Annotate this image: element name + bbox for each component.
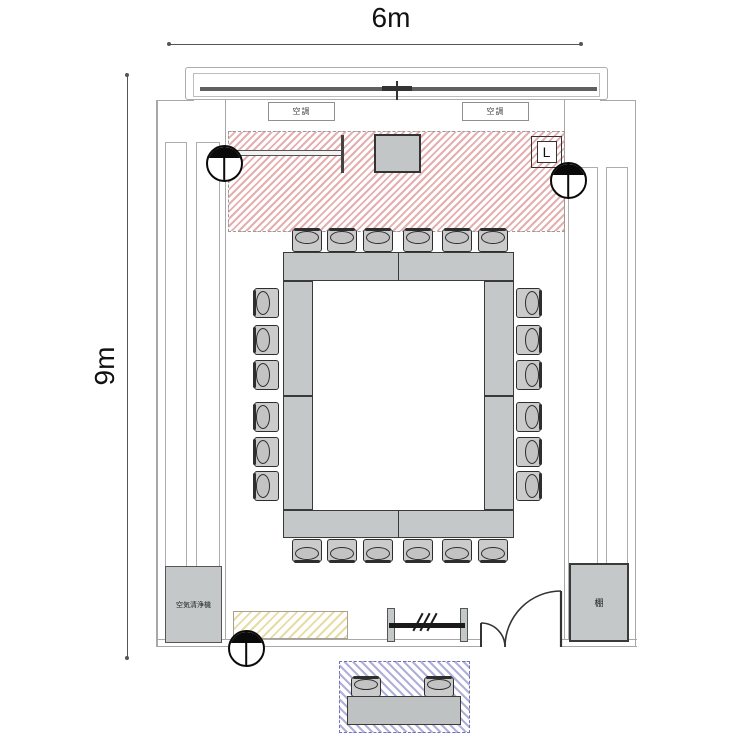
chair	[478, 229, 508, 252]
chair-seat	[525, 474, 539, 498]
pillar-bottom-left-icon	[228, 630, 265, 667]
chair	[516, 471, 541, 501]
width-dimension-label: 6m	[360, 0, 422, 36]
chair	[327, 539, 357, 562]
chair	[442, 229, 472, 252]
chair	[254, 360, 279, 390]
dimension-end-dot	[125, 73, 129, 77]
dimension-end-dot	[125, 656, 129, 660]
chair-seat	[256, 291, 270, 315]
chair	[363, 539, 393, 562]
chair-seat	[481, 547, 505, 560]
reception-table	[347, 696, 461, 725]
chair	[478, 539, 508, 562]
chair	[403, 229, 433, 252]
chair-seat	[406, 231, 430, 244]
bottom-outer-wall-right	[561, 646, 637, 648]
chair-seat	[445, 547, 469, 560]
chair	[254, 471, 279, 501]
chair-seat	[525, 291, 539, 315]
chair-seat	[445, 231, 469, 244]
height-dimension-line	[127, 75, 129, 658]
dimension-end-dot	[579, 42, 583, 46]
chair-seat	[525, 363, 539, 387]
chair-seat	[256, 405, 270, 429]
chair	[516, 325, 541, 355]
chair	[516, 402, 541, 432]
projector-screen-end	[341, 135, 344, 173]
chair	[327, 229, 357, 252]
chair	[292, 539, 322, 562]
door-swing-small	[481, 623, 505, 647]
bottom-outer-wall-left	[157, 646, 481, 648]
chair-seat	[481, 231, 505, 244]
chair	[363, 229, 393, 252]
dimension-end-dot	[167, 42, 171, 46]
right-wall-step	[600, 100, 636, 101]
ac-unit-left: 空調	[268, 102, 335, 121]
chair-seat	[366, 547, 390, 560]
chair	[516, 288, 541, 318]
left-wall-step	[156, 100, 194, 101]
table-divider	[484, 395, 514, 397]
chair	[516, 360, 541, 390]
chair-seat	[525, 328, 539, 352]
pillar-top-left-icon	[206, 145, 243, 182]
pillar-top-right-icon	[550, 162, 587, 199]
monitor-box	[374, 134, 421, 173]
chair	[254, 325, 279, 355]
chair-seat	[330, 547, 354, 560]
chair	[254, 402, 279, 432]
table-divider	[398, 252, 400, 281]
chair-seat	[525, 405, 539, 429]
chair-seat	[295, 231, 319, 244]
table-divider	[398, 510, 400, 538]
chair-seat	[525, 440, 539, 464]
chair-seat	[256, 440, 270, 464]
right-outer-wall	[635, 100, 637, 647]
switch-box: L	[537, 141, 557, 163]
chair-seat	[256, 474, 270, 498]
chair-seat	[256, 328, 270, 352]
height-dimension-label: 9m	[85, 339, 125, 393]
table-divider	[283, 395, 313, 397]
door-swing-large	[505, 591, 561, 647]
shelf: 棚	[569, 563, 629, 642]
chair-seat	[256, 363, 270, 387]
ac-unit-right: 空調	[462, 102, 529, 121]
chair	[292, 229, 322, 252]
projector-screen	[226, 150, 342, 156]
chair	[516, 437, 541, 467]
floor-plan: 6m 9m 空調 空調 L 空気清浄機 棚	[0, 0, 750, 750]
chair	[254, 437, 279, 467]
entrance-door	[470, 580, 570, 650]
left-wall-panel-1	[165, 142, 187, 639]
width-dimension-line	[169, 44, 581, 46]
chair	[403, 539, 433, 562]
air-purifier: 空気清浄機	[165, 566, 222, 643]
chair	[442, 539, 472, 562]
chair-seat	[406, 547, 430, 560]
chair-seat	[295, 547, 319, 560]
chair-seat	[330, 231, 354, 244]
left-wall-panel-2	[196, 142, 220, 639]
left-outer-wall	[156, 100, 158, 647]
partition-rail-center-tick	[396, 81, 398, 100]
chair	[254, 288, 279, 318]
chair-seat	[366, 231, 390, 244]
